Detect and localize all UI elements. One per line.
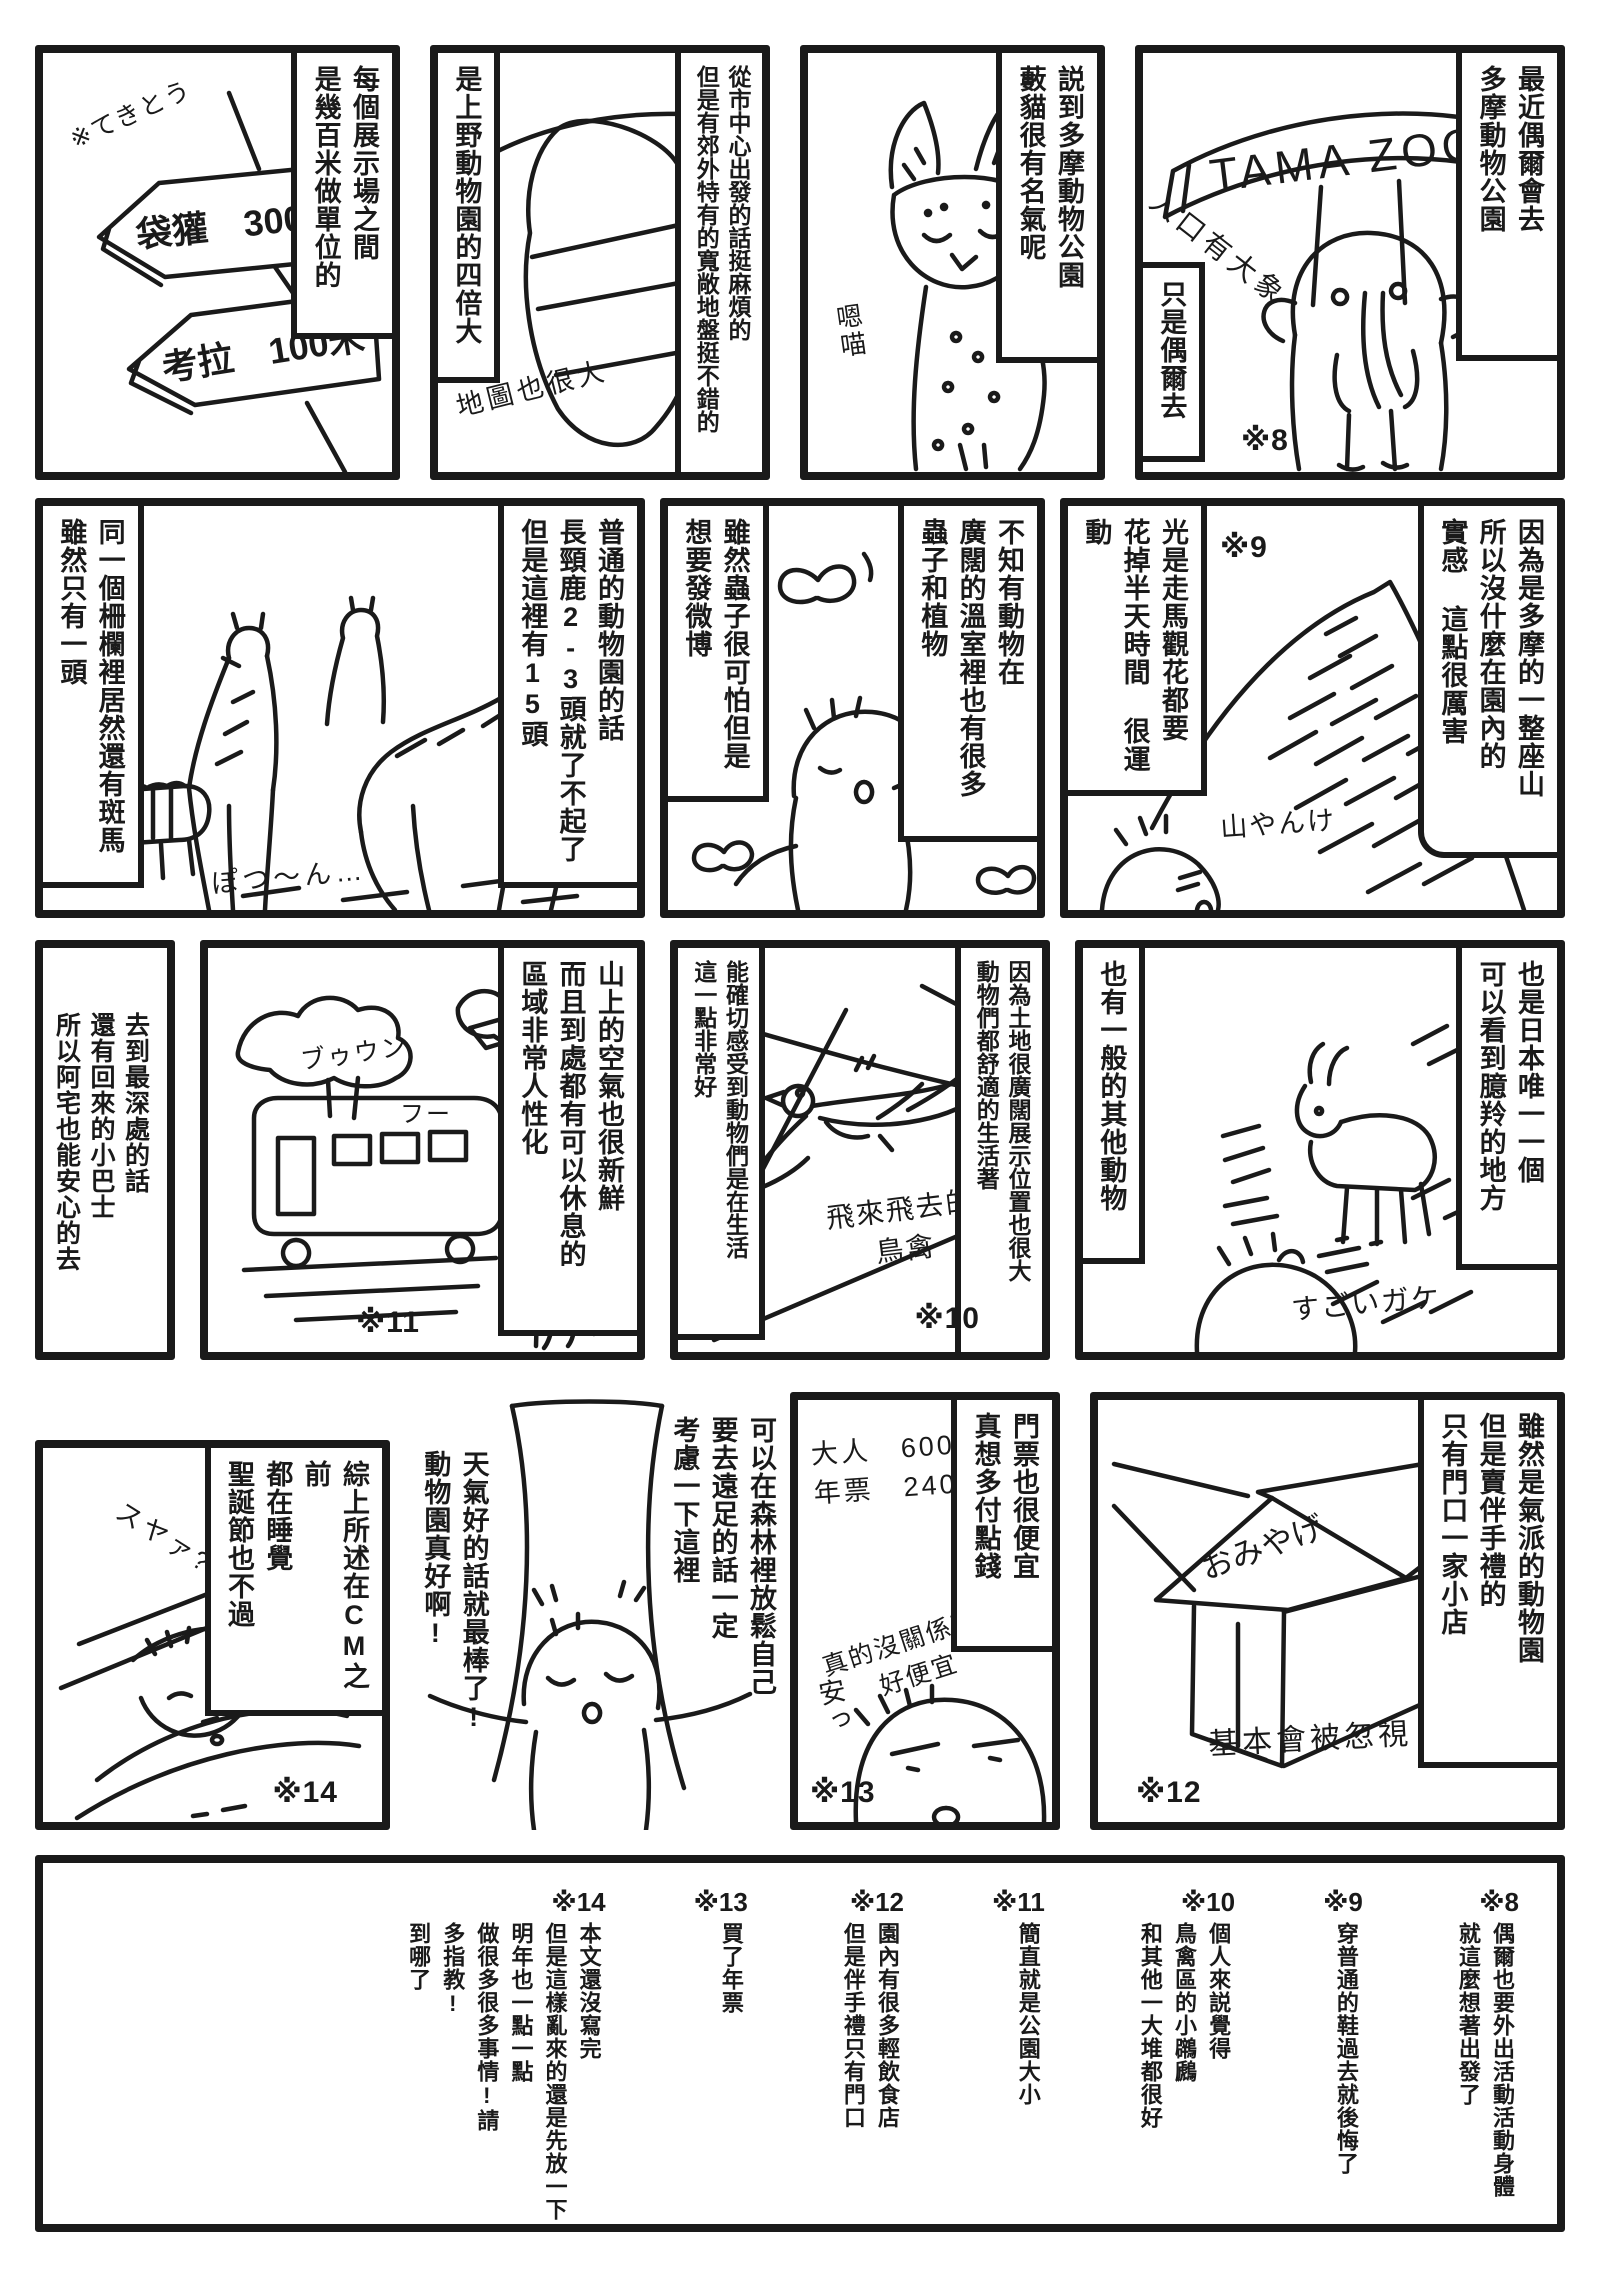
caption: 最近偶爾會去 多摩動物公園 [1456, 53, 1557, 361]
panel-sleeping: 綜上所述在CM之前 都在睡覺 聖誕節也不過 スヤァ?… ※14 [35, 1440, 390, 1830]
footnote-item: ※9 穿普通的鞋過去就後悔了 [1323, 1887, 1363, 2175]
note-sigh: フー [400, 1094, 452, 1129]
panel-map: MAP 從市中心出發的話挺麻煩的 但是有郊外特有的寬敞地盤挺不錯的 是上野動物園… [430, 45, 770, 480]
note-meow: 嗯喵 [828, 301, 872, 362]
caption: 去到最深處的話 還有回來的小巴士 所以阿宅也能安心的去 [43, 948, 163, 1282]
caption: 每個展示場之間 是幾百米做單位的 [291, 53, 392, 339]
footnote-marker: ※9 [1323, 1887, 1363, 1918]
caption: 雖然蟲子很可怕但是 想要發微博 [668, 506, 769, 802]
caption: 説到多摩動物公園 藪貓很有名氣呢 [996, 53, 1097, 363]
panel-birds: 因為土地很廣闊展示位置也很大 動物們都舒適的生活著 能確切感受到動物們是在生活 … [670, 940, 1050, 1360]
footnote-marker: ※10 [1181, 1887, 1235, 1918]
note-its-a-mountain: 山やんけ [1219, 798, 1337, 845]
footnote-text: 個人來説覺得 鳥禽區的小鸊鷉 和其他一大堆都很好 [1133, 1922, 1235, 2129]
footnote-item: ※14 本文還沒寫完 但是這樣亂來的還是先放一下 明年也一點一點 做很多很多事情… [401, 1887, 606, 2221]
caption: 山上的空氣也很新鮮 而且到處都有可以休息的 區域非常人性化 [498, 948, 637, 1336]
caption: 同一個柵欄裡居然還有斑馬 雖然只有一頭 [43, 506, 144, 888]
footnote-marker: ※8 [1479, 1887, 1519, 1918]
caption: 雖然是氣派的動物園 但是賣伴手禮的 只有門口一家小店 [1418, 1400, 1557, 1768]
panel-giraffes: 普通的動物園的話 長頸鹿2-3頭就了不起了 但是這裡有15頭 同一個柵欄裡居然還… [35, 498, 645, 918]
footnote-marker: ※13 [694, 1887, 748, 1918]
zoo-gate-sign-text: TAMA ZOO [1207, 117, 1486, 202]
footnotes-panel: ※8 偶爾也要外出活動活動身體 就這麼想著出發了 ※9 穿普通的鞋過去就後悔了 … [35, 1855, 1565, 2232]
panel-greenhouse: 不知有動物在 廣闊的溫室裡也有很多 蟲子和植物 雖然蟲子很可怕但是 想要發微博 [660, 498, 1045, 918]
panel-row-4: おみやげ 雖然是氣派的動物園 但是賣伴手禮的 只有門口一家小店 基本會被忽視 ※… [35, 1392, 1565, 1830]
footnote-item: ※12 園內有很多輕飲食店 但是伴手禮只有門口 [836, 1887, 904, 2129]
souvenir-sign-text: おみやげ [1196, 1509, 1329, 1587]
footnote-marker-13: ※13 [810, 1775, 876, 1810]
footnote-text: 買了年票 [714, 1922, 748, 2014]
caption: 不知有動物在 廣闊的溫室裡也有很多 蟲子和植物 [898, 506, 1037, 842]
footnote-marker: ※11 [992, 1887, 1045, 1918]
footnote-marker-10: ※10 [914, 1301, 980, 1336]
panel-shop: おみやげ 雖然是氣派的動物園 但是賣伴手禮的 只有門口一家小店 基本會被忽視 ※… [1090, 1392, 1565, 1830]
caption: 門票也很便宜 真想多付點錢 [951, 1400, 1052, 1652]
panel-weather-bubble: 可以在森林裡放鬆自己 要去遠足的話一定 考慮一下這裡 天氣好的話就最棒了! 動物… [390, 1392, 790, 1830]
caption: 天氣好的話就最棒了! 動物園真好啊! [412, 1444, 497, 1739]
panel-signpost: 袋獾 300米 考拉 100米 每個展示場之間 是幾百米做單位的 ※てきとう [35, 45, 400, 480]
footnote-text: 園內有很多輕飲食店 但是伴手禮只有門口 [836, 1922, 904, 2129]
caption: 因為是多摩的一整座山 所以沒什麼在園內的 實感 這點很厲害 [1418, 506, 1557, 858]
panel-mountain: 因為是多摩的一整座山 所以沒什麼在園內的 實感 這點很厲害 光是走馬觀花都要 花… [1060, 498, 1565, 918]
caption: 可以在森林裡放鬆自己 要去遠足的話一定 考慮一下這裡 [661, 1410, 784, 1702]
footnote-marker-8: ※8 [1241, 423, 1289, 458]
footnote-text: 本文還沒寫完 但是這樣亂來的還是先放一下 明年也一點一點 做很多很多事情!請 多… [401, 1922, 606, 2221]
panel-minibus-text: 去到最深處的話 還有回來的小巴士 所以阿宅也能安心的去 [35, 940, 175, 1360]
footnote-marker-14: ※14 [272, 1775, 338, 1810]
panel-row-3: 也是日本唯一一個 可以看到臆羚的地方 也有一般的其他動物 すごいガケ 因為土地很… [35, 940, 1565, 1360]
caption: 因為土地很廣闊展示位置也很大 動物們都舒適的生活著 [955, 948, 1042, 1352]
footnote-marker: ※14 [551, 1887, 605, 1918]
footnote-marker-12: ※12 [1136, 1775, 1202, 1810]
comic-page: TAMA ZOO 最近偶爾會去 多摩動物公園 只是偶爾去 入口有大象 ※8 [0, 0, 1600, 2288]
footnote-marker-11: ※11 [356, 1305, 420, 1340]
panel-serow: 也是日本唯一一個 可以看到臆羚的地方 也有一般的其他動物 すごいガケ [1075, 940, 1565, 1360]
panel-tickets: 門票也很便宜 真想多付點錢 大人 600円 年票 2400円 真的沒關係嗎? 好… [790, 1392, 1060, 1830]
caption: 普通的動物園的話 長頸鹿2-3頭就了不起了 但是這裡有15頭 [498, 506, 637, 888]
panel-serval: 説到多摩動物公園 藪貓很有名氣呢 嗯喵 [800, 45, 1105, 480]
caption: 從市中心出發的話挺麻煩的 但是有郊外特有的寬敞地盤挺不錯的 [675, 53, 762, 472]
footnote-item: ※10 個人來説覺得 鳥禽區的小鸊鷉 和其他一大堆都很好 [1133, 1887, 1235, 2129]
footnote-text: 簡直就是公園大小 [1011, 1922, 1045, 2106]
panel-row-5: ※8 偶爾也要外出活動活動身體 就這麼想著出發了 ※9 穿普通的鞋過去就後悔了 … [35, 1855, 1565, 2232]
caption: 也是日本唯一一個 可以看到臆羚的地方 [1456, 948, 1557, 1270]
footnote-marker-9: ※9 [1220, 530, 1268, 565]
panel-row-2: 因為是多摩的一整座山 所以沒什麼在園內的 實感 這點很厲害 光是走馬觀花都要 花… [35, 498, 1565, 918]
caption: 光是走馬觀花都要 花掉半天時間 很運動 [1068, 506, 1207, 796]
footnotes-list: ※8 偶爾也要外出活動活動身體 就這麼想著出發了 ※9 穿普通的鞋過去就後悔了 … [43, 1863, 1557, 2224]
panel-entrance: TAMA ZOO 最近偶爾會去 多摩動物公園 只是偶爾去 入口有大象 ※8 [1135, 45, 1565, 480]
caption: 能確切感受到動物們是在生活 這一點非常好 [678, 948, 765, 1340]
caption: 綜上所述在CM之前 都在睡覺 聖誕節也不過 [205, 1448, 382, 1716]
footnote-text: 偶爾也要外出活動活動身體 就這麼想著出發了 [1451, 1922, 1519, 2198]
footnote-item: ※8 偶爾也要外出活動活動身體 就這麼想著出發了 [1451, 1887, 1519, 2198]
footnote-marker: ※12 [850, 1887, 904, 1918]
footnote-item: ※13 買了年票 [694, 1887, 748, 2014]
footnote-item: ※11 簡直就是公園大小 [992, 1887, 1045, 2106]
caption: 只是偶爾去 [1143, 262, 1205, 462]
caption: 也有一般的其他動物 [1083, 948, 1145, 1264]
panel-row-1: TAMA ZOO 最近偶爾會去 多摩動物公園 只是偶爾去 入口有大象 ※8 [35, 45, 1565, 480]
footnote-text: 穿普通的鞋過去就後悔了 [1329, 1922, 1363, 2175]
panel-bus: 山上的空氣也很新鮮 而且到處都有可以休息的 區域非常人性化 ブゥウン フー ※1… [200, 940, 645, 1360]
caption: 是上野動物園的四倍大 [438, 53, 500, 383]
